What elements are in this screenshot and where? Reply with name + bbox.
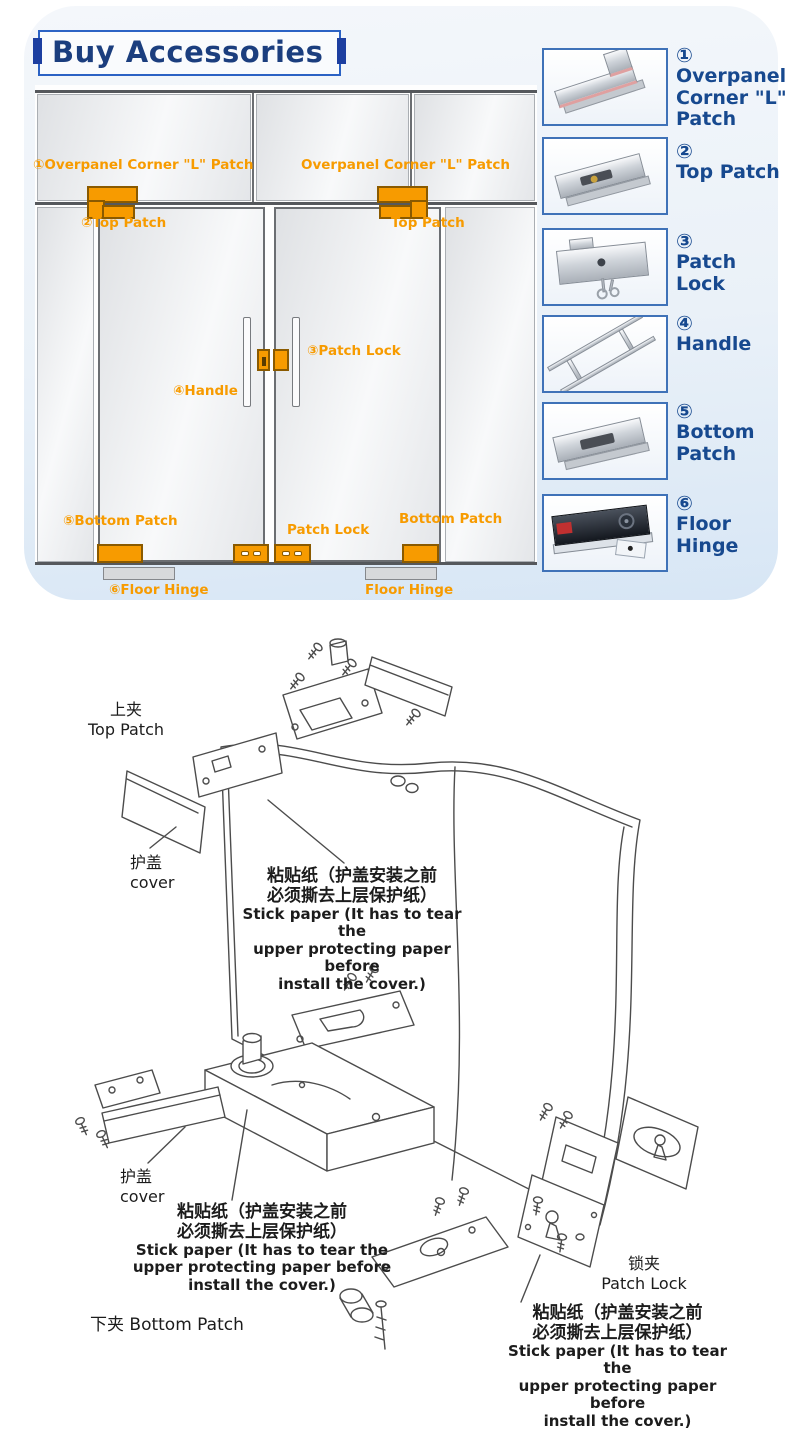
product-number: ④: [676, 312, 790, 334]
annotation-top-patch: 上夹 Top Patch: [66, 696, 186, 739]
stick-paper-cn-line1: 粘贴纸（护盖安装之前: [132, 1202, 392, 1222]
product-label-4: ④ Handle: [676, 312, 790, 356]
bottom-patch-en: Bottom Patch: [129, 1315, 243, 1335]
stick-paper-en-line2: upper protecting paper before: [132, 1259, 392, 1276]
product-label-1: ① Overpanel Corner "L" Patch: [676, 44, 790, 130]
label-patch-lock-floor: Patch Lock: [287, 522, 369, 538]
product-thumb-patch-lock: [542, 228, 668, 306]
keyway: [262, 357, 266, 366]
product-number: ①: [676, 44, 790, 66]
patch-lock-cn: 锁夹: [569, 1250, 719, 1274]
stick-paper-en-line3: install the cover.): [132, 1277, 392, 1294]
label-top-patch-right: Top Patch: [391, 215, 465, 231]
product-thumb-bottom-patch: [542, 402, 668, 480]
stick-paper-en-line3: install the cover.): [227, 976, 477, 993]
annotation-top-patch-cn: 上夹: [66, 696, 186, 720]
screw-hole: [282, 551, 290, 556]
patch-lock-en: Patch Lock: [569, 1274, 719, 1293]
label-floor-hinge-left: ⑥Floor Hinge: [109, 582, 209, 598]
patch-lock-marker-a: [257, 349, 270, 371]
annotation-bottom-patch: 下夹 Bottom Patch: [90, 1310, 244, 1335]
product-thumb-handle: [542, 315, 668, 393]
label-overpanel-right: Overpanel Corner "L" Patch: [301, 157, 510, 173]
floor-hinge-plate-right: [365, 567, 437, 580]
product-thumb-corner-l-patch: [542, 48, 668, 126]
screw-hole: [294, 551, 302, 556]
product-thumb-floor-hinge: [542, 494, 668, 572]
sidelite-left: [37, 207, 94, 562]
patch-lock-marker-b: [273, 349, 289, 371]
door-handle-right: [292, 317, 300, 407]
stick-paper-en-line2: upper protecting paper before: [500, 1378, 735, 1413]
label-bottom-patch-left: ⑤Bottom Patch: [63, 513, 178, 529]
product-label-6: ⑥ Floor Hinge: [676, 492, 790, 557]
product-number: ⑥: [676, 492, 790, 514]
cover-plate-top: [122, 771, 205, 853]
product-number: ③: [676, 230, 790, 252]
title-frame: Buy Accessories: [38, 30, 341, 76]
product-label-5: ⑤ Bottom Patch: [676, 400, 790, 465]
leader-stick-paper-3: [521, 1255, 540, 1302]
stick-paper-en-line2: upper protecting paper before: [227, 941, 477, 976]
stick-paper-cn-line1: 粘贴纸（护盖安装之前: [227, 866, 477, 886]
label-patch-lock-mid: ③Patch Lock: [307, 343, 401, 359]
stick-paper-en-line3: install the cover.): [500, 1413, 735, 1430]
floor-hinge-plate-left: [103, 567, 175, 580]
product-name: Patch Lock: [676, 252, 790, 295]
product-name: Overpanel Corner "L" Patch: [676, 66, 790, 130]
transom-glass-right: [414, 94, 535, 201]
label-overpanel-left: ①Overpanel Corner "L" Patch: [33, 157, 253, 173]
product-label-2: ② Top Patch: [676, 140, 790, 184]
annotation-stick-paper-1: 粘贴纸（护盖安装之前 必须撕去上层保护纸） Stick paper (It ha…: [227, 866, 477, 993]
product-name: Floor Hinge: [676, 514, 790, 557]
bottom-patch-marker-right: [402, 544, 439, 563]
label-handle: ④Handle: [173, 383, 238, 399]
annotation-top-patch-en: Top Patch: [66, 720, 186, 739]
door-diagram: ①Overpanel Corner "L" Patch Overpanel Co…: [35, 85, 537, 600]
transom-glass-left: [37, 94, 251, 201]
sidelite-right: [445, 207, 535, 562]
label-bottom-patch-right: Bottom Patch: [399, 511, 502, 527]
top-rail: [35, 90, 537, 93]
leader-stick-paper-1: [268, 800, 344, 863]
screw-hole: [253, 551, 261, 556]
annotation-cover-2: 护盖 cover: [120, 1163, 164, 1206]
floor-patch-lock-b: [274, 544, 311, 563]
page-title: Buy Accessories: [52, 35, 323, 69]
annotation-patch-lock: 锁夹 Patch Lock: [569, 1250, 719, 1293]
stick-paper-cn-line2: 必须撕去上层保护纸）: [227, 886, 477, 906]
annotation-stick-paper-3: 粘贴纸（护盖安装之前 必须撕去上层保护纸） Stick paper (It ha…: [500, 1303, 735, 1430]
stick-paper-cn-line1: 粘贴纸（护盖安装之前: [500, 1303, 735, 1323]
stick-paper-cn-line2: 必须撕去上层保护纸）: [500, 1323, 735, 1343]
transom-glass-middle: [256, 94, 409, 201]
page: Buy Accessories: [0, 0, 800, 1446]
stick-paper-en-line1: Stick paper (It has to tear the: [227, 906, 477, 941]
bottom-patch-marker-left: [97, 544, 143, 563]
stick-paper-en-line1: Stick paper (It has to tear the: [132, 1242, 392, 1259]
floor-hinge-assembly: [75, 1034, 434, 1172]
floor-patch-lock-a: [233, 544, 269, 563]
cover-cn: 护盖: [130, 849, 174, 873]
product-label-3: ③ Patch Lock: [676, 230, 790, 295]
annotation-stick-paper-2: 粘贴纸（护盖安装之前 必须撕去上层保护纸） Stick paper (It ha…: [132, 1202, 392, 1294]
stick-paper-en-line1: Stick paper (It has to tear the: [500, 1343, 735, 1378]
annotation-cover-1: 护盖 cover: [130, 849, 174, 892]
screw-hole: [241, 551, 249, 556]
product-number: ②: [676, 140, 790, 162]
product-name: Bottom Patch: [676, 422, 790, 465]
product-number: ⑤: [676, 400, 790, 422]
transom-divider: [252, 93, 254, 203]
cover-cn: 护盖: [120, 1163, 164, 1187]
label-floor-hinge-right: Floor Hinge: [365, 582, 453, 598]
stick-paper-cn-line2: 必须撕去上层保护纸）: [132, 1222, 392, 1242]
label-top-patch-left: ②Top Patch: [81, 215, 166, 231]
door-handle-left: [243, 317, 251, 407]
product-name: Top Patch: [676, 162, 790, 183]
product-thumb-top-patch: [542, 137, 668, 215]
bottom-patch-cn: 下夹: [90, 1315, 124, 1335]
cover-en: cover: [130, 873, 174, 892]
product-name: Handle: [676, 334, 790, 355]
